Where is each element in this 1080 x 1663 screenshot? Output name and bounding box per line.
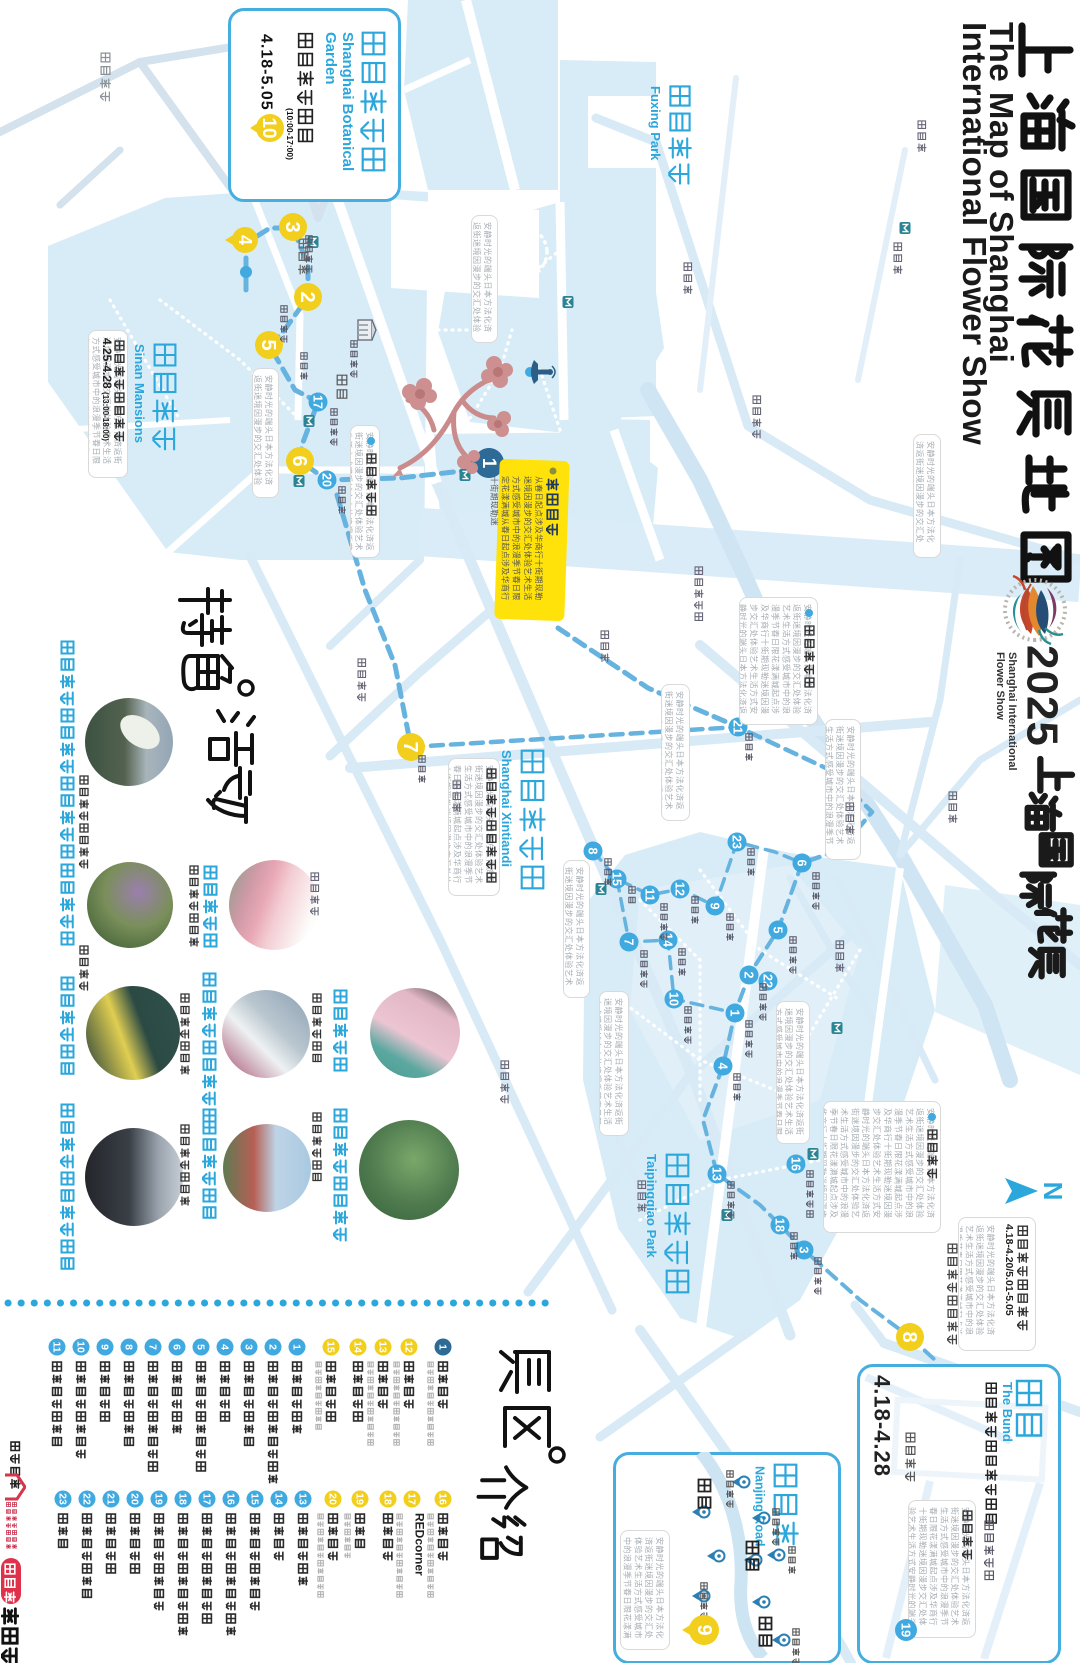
svg-text:10: 10 xyxy=(258,117,279,138)
svg-text:16: 16 xyxy=(224,1493,236,1505)
svg-text:17: 17 xyxy=(405,1493,417,1505)
svg-text:REDcorner: REDcorner xyxy=(413,1513,427,1576)
svg-text:19: 19 xyxy=(353,1493,365,1505)
svg-text:13: 13 xyxy=(296,1493,308,1505)
svg-text:N: N xyxy=(1038,1182,1068,1201)
svg-text:21: 21 xyxy=(104,1493,116,1505)
svg-text:19: 19 xyxy=(899,1623,914,1637)
svg-text:14: 14 xyxy=(272,1493,284,1505)
svg-text:22: 22 xyxy=(80,1493,92,1505)
svg-text:9: 9 xyxy=(693,1624,715,1635)
svg-text:23: 23 xyxy=(56,1493,68,1505)
svg-text:20: 20 xyxy=(128,1493,140,1505)
svg-text:20: 20 xyxy=(326,1493,338,1505)
svg-text:16: 16 xyxy=(436,1493,448,1505)
svg-text:18: 18 xyxy=(381,1493,393,1505)
svg-text:15: 15 xyxy=(248,1493,260,1505)
svg-text:19: 19 xyxy=(152,1493,164,1505)
svg-text:18: 18 xyxy=(176,1493,188,1505)
svg-text:17: 17 xyxy=(200,1493,212,1505)
